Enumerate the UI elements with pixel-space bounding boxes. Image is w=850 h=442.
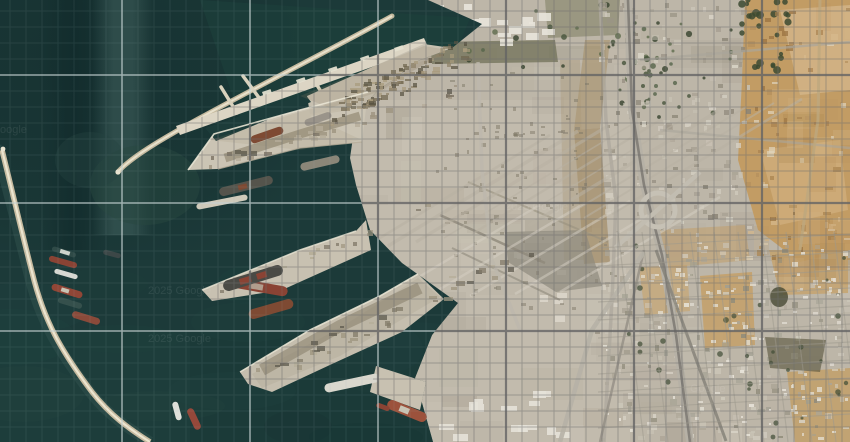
svg-text:Google: Google [690,383,725,395]
svg-text:oogle: oogle [0,124,27,136]
